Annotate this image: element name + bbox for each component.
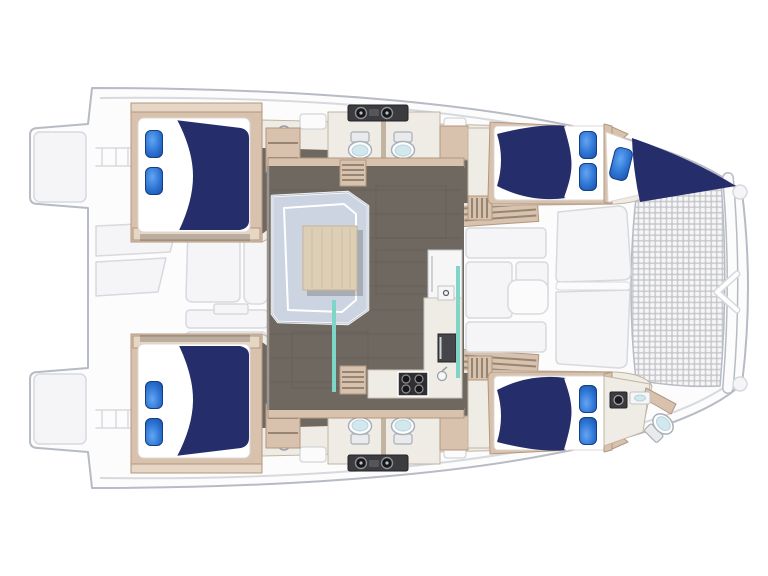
sun-pad-divider: [556, 282, 630, 290]
sliding-door-track-starboard: [456, 266, 460, 378]
sun-pad-starboard: [556, 290, 630, 368]
bow-tip-starboard: [733, 377, 747, 391]
swim-platform-starboard: [34, 374, 86, 444]
bow-area: [631, 178, 747, 391]
port-companionway-steps: [340, 160, 366, 186]
stove: [398, 372, 428, 396]
foredeck-cushion: [466, 228, 546, 258]
cockpit-step: [214, 304, 248, 314]
countertop-appliance: [438, 286, 454, 300]
floor-plan-canvas: [0, 0, 768, 576]
sun-pad-port: [556, 206, 631, 282]
trampoline: [631, 182, 725, 386]
cockpit-seat: [96, 258, 166, 296]
foredeck-cushion: [466, 322, 546, 352]
starboard-companionway-steps: [340, 366, 366, 394]
bow-tip-port: [733, 185, 747, 199]
burner: [415, 375, 423, 383]
basin: [635, 395, 646, 401]
sliding-door-track-port: [332, 300, 336, 392]
fridge-handle: [440, 337, 442, 359]
catamaran-floor-plan: [0, 0, 768, 576]
burner: [415, 385, 423, 393]
foredeck-ottoman: [508, 280, 548, 314]
burner: [402, 375, 410, 383]
bow-head-floor: [604, 376, 650, 446]
salon-table: [303, 226, 357, 290]
aft-starboard-cabin: [131, 334, 262, 473]
foredeck-cushion: [466, 262, 512, 318]
washer-door: [614, 396, 623, 405]
sink: [438, 372, 447, 381]
burner: [402, 385, 410, 393]
swim-platform-port: [34, 132, 86, 202]
aft-port-cabin: [131, 103, 262, 242]
